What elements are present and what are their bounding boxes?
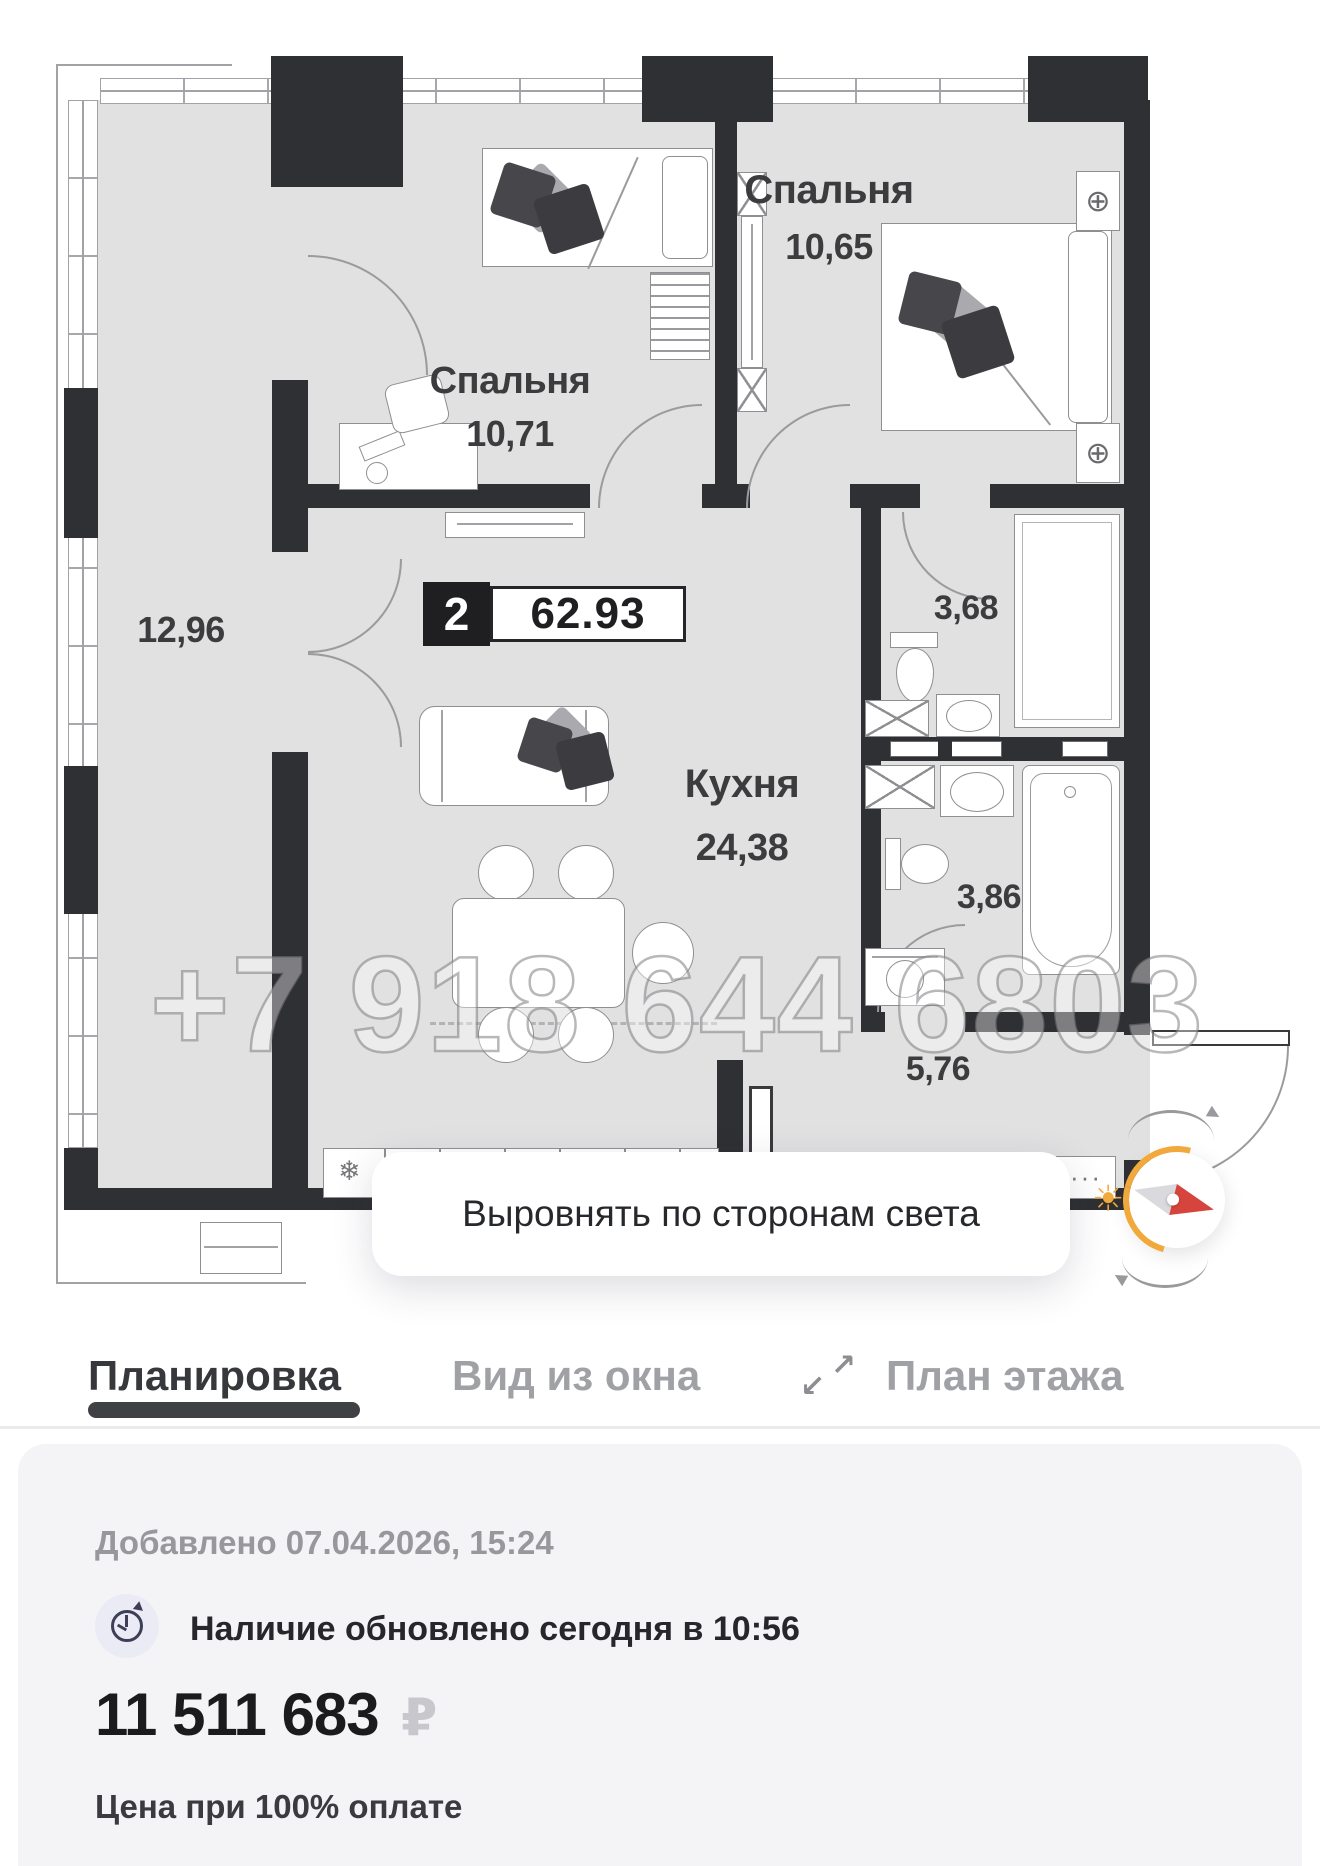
rotate-arrow-top: [1128, 1110, 1214, 1140]
room-name: Спальня: [700, 166, 958, 215]
listing-info-card: Добавлено 07.04.2026, 15:24 Наличие обно…: [18, 1444, 1302, 1866]
room-area: 3,86: [919, 877, 1059, 918]
rooms-count: 2: [444, 587, 470, 641]
closet-x-bottom: [737, 368, 767, 412]
tv-console: [445, 512, 585, 538]
fridge-snowflake-icon: ❄: [338, 1156, 361, 1187]
align-to-cardinal-button[interactable]: Выровнять по сторонам света: [372, 1152, 1070, 1276]
loggia-frame-left: [56, 64, 58, 1284]
dining-chair: [478, 845, 534, 901]
room-label-bathroom1: 3,68: [896, 588, 1036, 629]
sofa-armrest-left: [441, 710, 443, 802]
desk-lamp: [366, 462, 388, 484]
room-label-loggia: 12,96: [106, 608, 256, 652]
dining-chair: [558, 845, 614, 901]
room-area: 24,38: [612, 825, 872, 871]
sun-icon: ☀: [1092, 1178, 1124, 1220]
rotate-arrow-bottom-head: [1112, 1270, 1128, 1286]
tab-planirovka[interactable]: Планировка: [88, 1352, 341, 1400]
washer-spot-bathroom1: [865, 700, 929, 737]
wardrobe-unit-bottom: ⊕: [1076, 423, 1120, 483]
window-band-top-line: [100, 90, 1148, 92]
bed-2-pillow: [1068, 231, 1108, 423]
price-value: 11 511 683: [95, 1681, 379, 1748]
bathtub-drain: [1064, 786, 1076, 798]
tab-plan-etazha[interactable]: План этажа: [886, 1352, 1123, 1400]
tab-vid-iz-okna[interactable]: Вид из окна: [452, 1352, 700, 1400]
sink1-basin: [946, 700, 992, 732]
price-note: Цена при 100% оплате: [95, 1788, 462, 1826]
clock-icon: [95, 1594, 159, 1658]
loggia-frame-bottom: [56, 1282, 306, 1284]
room-area: 10,65: [700, 225, 958, 269]
wardrobe-unit-top: ⊕: [1076, 171, 1120, 231]
area-badge: 62.93: [490, 586, 686, 642]
price-row: 11 511 683 ₽: [95, 1680, 437, 1749]
compass-widget[interactable]: ☀: [1090, 1100, 1280, 1290]
rotate-arrow-bottom: [1122, 1258, 1208, 1288]
pier-top-2: [642, 56, 773, 122]
room-area: 3,68: [896, 588, 1036, 629]
clock-hand-minute: [125, 1615, 128, 1627]
wall-loggia-1: [272, 380, 308, 552]
pier-left-2: [64, 766, 98, 914]
total-area: 62.93: [530, 589, 645, 639]
room-name: Спальня: [380, 358, 640, 404]
wall-right: [1124, 100, 1150, 1035]
washer-spot-bathroom2: [865, 765, 935, 809]
wardrobe-icon: ⊕: [1085, 184, 1110, 219]
loggia-bench-line: [204, 1246, 278, 1248]
expand-arrow-down-icon: ↙: [800, 1369, 825, 1404]
phone-watermark: +7 918 644 6803: [150, 926, 1270, 1082]
wall-bedroom2-bottom-c: [990, 484, 1124, 508]
room-area: 12,96: [106, 608, 256, 652]
room-label-kitchen: Кухня 24,38: [612, 760, 872, 871]
expand-arrow-up-icon: ↗: [831, 1348, 856, 1383]
loggia-frame-top: [56, 64, 232, 66]
pier-left-1: [64, 388, 98, 538]
availability-text: Наличие обновлено сегодня в 10:56: [190, 1610, 800, 1649]
rotate-arrow-top-head: [1206, 1106, 1222, 1122]
room-area: 10,71: [380, 412, 640, 456]
loggia-bench: [200, 1222, 282, 1274]
added-date: Добавлено 07.04.2026, 15:24: [95, 1524, 554, 1562]
shaft-slot-divider: [938, 740, 952, 758]
bedroom1-ladder: [650, 272, 710, 360]
tab-divider: [0, 1426, 1320, 1429]
toilet1-tank: [890, 632, 938, 648]
room-name: Кухня: [612, 760, 872, 809]
ruble-sign: ₽: [401, 1689, 437, 1747]
sink2-basin: [950, 772, 1004, 812]
room-label-bathroom2: 3,86: [919, 877, 1059, 918]
tab-bar: Планировка Вид из окна ↗ ↙ План этажа: [0, 1330, 1320, 1428]
wardrobe-icon: ⊕: [1085, 436, 1110, 471]
expand-icon[interactable]: ↗ ↙: [800, 1348, 856, 1404]
active-tab-underline: [88, 1402, 360, 1418]
room-label-bedroom2: Спальня 10,65: [700, 166, 958, 269]
toilet2-tank: [885, 838, 901, 890]
tv-console-line: [457, 523, 573, 525]
room-label-bedroom1: Спальня 10,71: [380, 358, 640, 456]
pier-top-1: [271, 56, 403, 187]
wall-bedroom2-bottom-b: [850, 484, 920, 508]
rooms-badge: 2: [423, 582, 490, 646]
window-band-left-line: [82, 100, 84, 1148]
shaft-slot-2: [1062, 741, 1108, 757]
wall-between-bedrooms: [715, 100, 737, 508]
